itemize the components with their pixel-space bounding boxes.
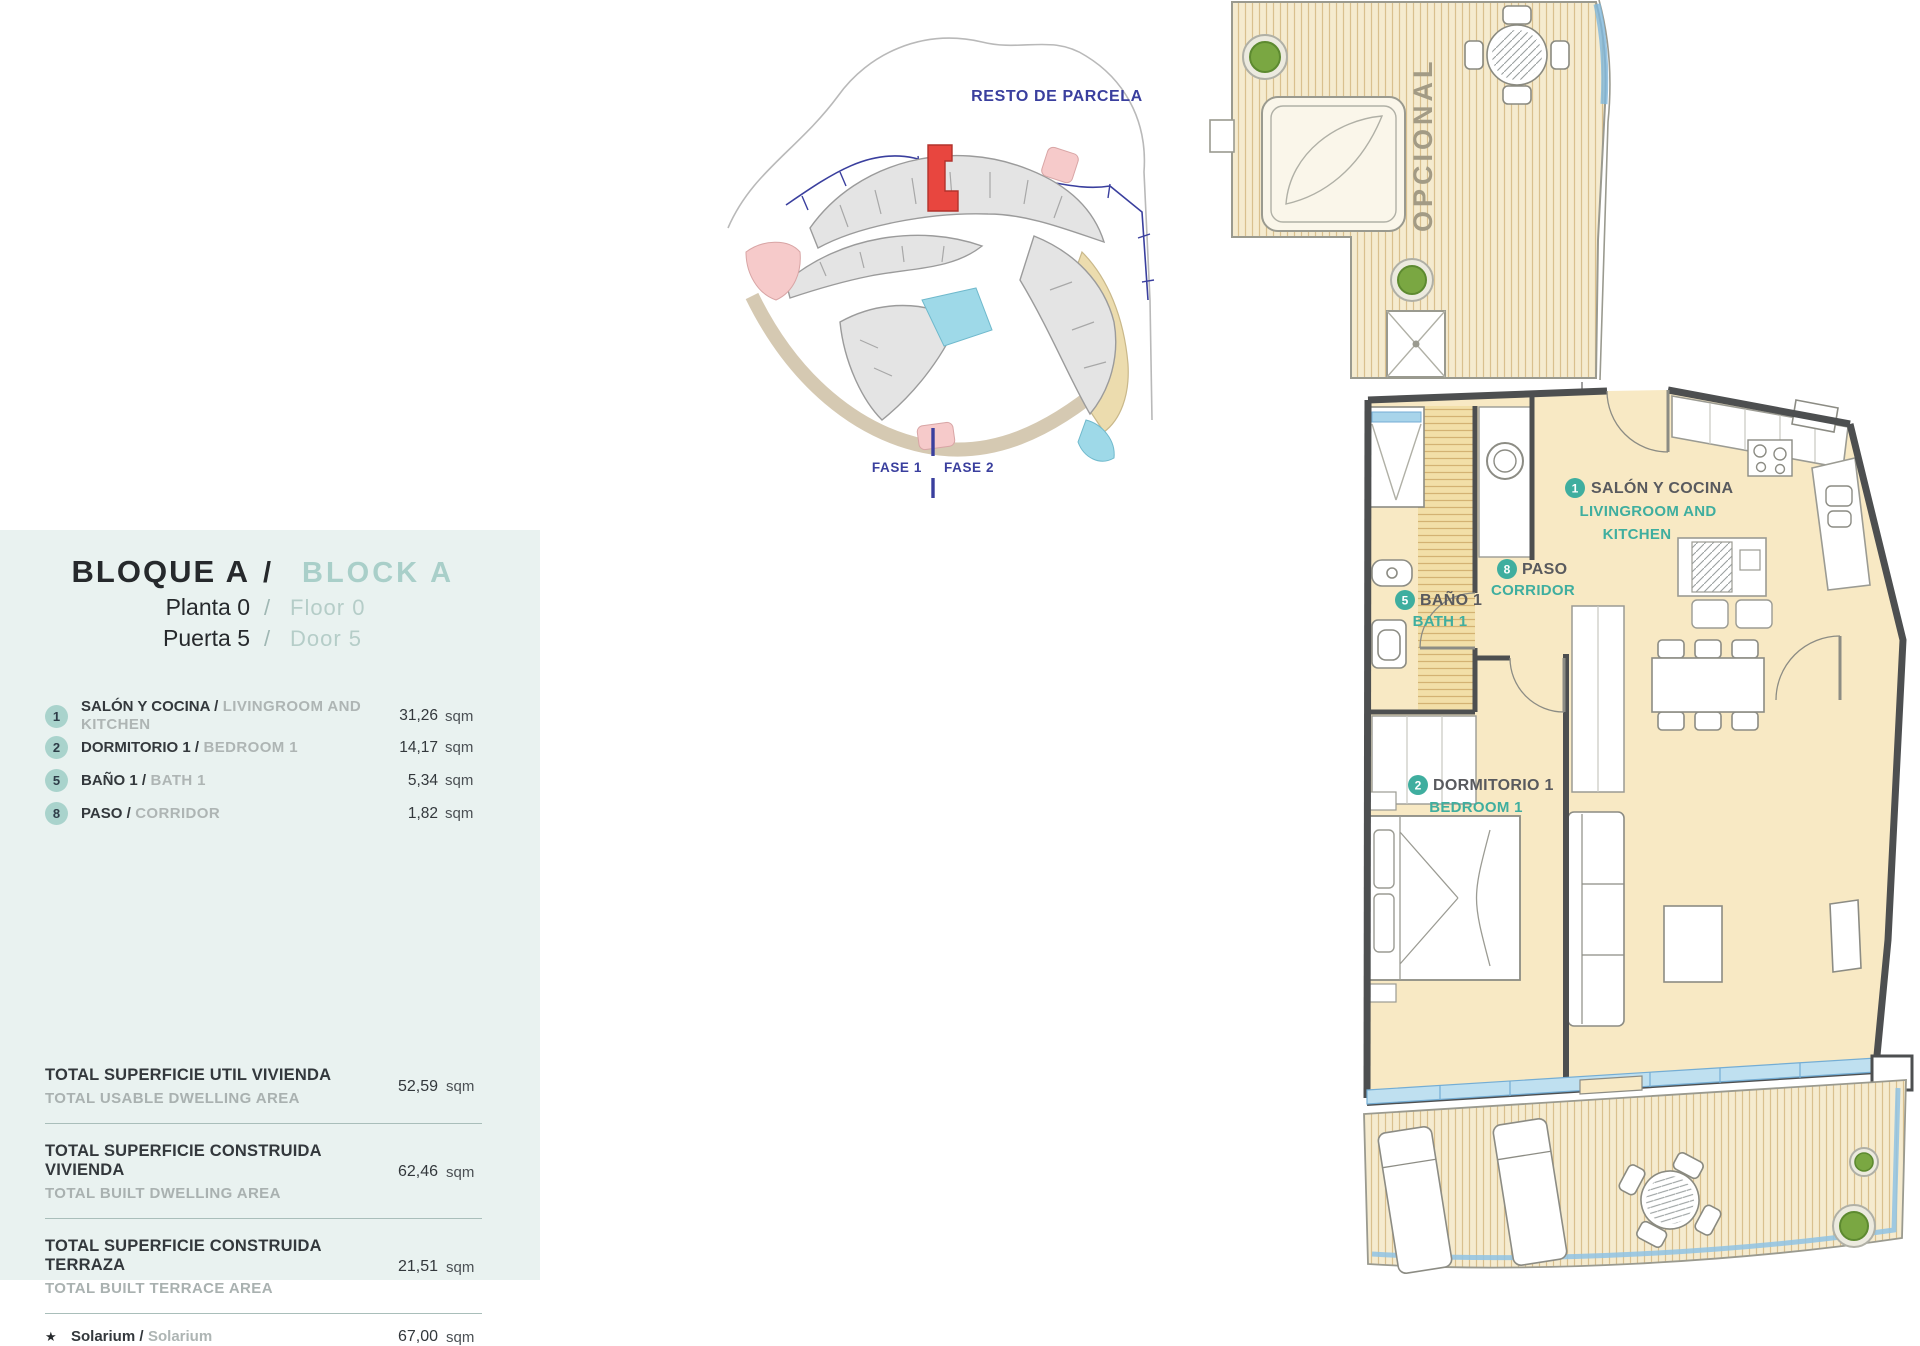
room-area-unit: sqm	[438, 805, 482, 822]
room-area: 5,34	[374, 772, 438, 790]
optional-label: OPCIONAL	[1408, 57, 1438, 232]
room-area-unit: sqm	[438, 772, 482, 789]
utility-closet	[1479, 407, 1531, 557]
svg-text:8: 8	[1504, 563, 1511, 577]
tv-bench-icon	[1830, 900, 1861, 972]
fase1-label: FASE 1	[872, 460, 922, 475]
svg-text:LIVINGROOM AND: LIVINGROOM AND	[1580, 503, 1717, 520]
building-band-mid	[786, 235, 982, 298]
svg-text:PASO: PASO	[1522, 561, 1567, 578]
apartment: 1 SALÓN Y COCINA LIVINGROOM AND KITCHEN …	[1367, 390, 1912, 1104]
armchair-icon	[1664, 906, 1722, 982]
washing-machine-icon	[1487, 443, 1523, 479]
room-row-bedroom: 2 DORMITORIO 1 / BEDROOM 1 14,17 sqm	[45, 731, 482, 764]
svg-text:DORMITORIO 1: DORMITORIO 1	[1433, 777, 1554, 794]
title-separator: /	[250, 557, 284, 590]
resto-de-parcela-label: RESTO DE PARCELA	[971, 88, 1143, 105]
floor-separator: /	[250, 595, 284, 621]
nightstand-icon	[1370, 984, 1396, 1002]
plant-icon	[1243, 35, 1287, 79]
svg-text:BEDROOM 1: BEDROOM 1	[1429, 799, 1523, 816]
svg-text:CORRIDOR: CORRIDOR	[1491, 582, 1575, 599]
door-en: Door 5	[284, 626, 482, 652]
block-title: BLOQUE A / BLOCK A	[45, 554, 482, 590]
block-title-es: BLOQUE A	[45, 554, 250, 590]
room-area-unit: sqm	[438, 739, 482, 756]
solarium-unit: sqm	[438, 1329, 482, 1346]
floor-row: Planta 0 / Floor 0	[45, 594, 482, 621]
bathroom-floor	[1418, 406, 1475, 710]
total-usable-area: TOTAL SUPERFICIE UTIL VIVIENDA TOTAL USA…	[45, 1048, 482, 1124]
hot-tub-icon	[1262, 97, 1405, 231]
room-row-livingroom: 1 SALÓN Y COCINA / LIVINGROOM AND KITCHE…	[45, 698, 482, 731]
svg-text:2: 2	[1415, 779, 1422, 793]
room-number-badge: 5	[45, 769, 68, 792]
hob-icon	[1748, 440, 1792, 476]
toilet-icon	[1372, 620, 1406, 668]
plant-icon	[1391, 259, 1433, 301]
floor-es: Planta 0	[45, 594, 250, 621]
total-unit: sqm	[438, 1078, 482, 1095]
solarium-star-icon: ★	[45, 1329, 71, 1345]
bathroom-window	[1372, 412, 1421, 422]
dining-table-icon	[1652, 640, 1764, 730]
unit-info-panel: BLOQUE A / BLOCK A Planta 0 / Floor 0 Pu…	[0, 530, 540, 1280]
svg-text:BATH 1: BATH 1	[1413, 613, 1468, 630]
washbasin-icon	[1372, 560, 1412, 586]
room-area-unit: sqm	[438, 708, 482, 725]
total-label: TOTAL SUPERFICIE CONSTRUIDA VIVIENDA TOT…	[45, 1142, 374, 1202]
total-label: TOTAL SUPERFICIE UTIL VIVIENDA TOTAL USA…	[45, 1066, 374, 1107]
terrace-niche	[1210, 120, 1234, 152]
svg-text:KITCHEN: KITCHEN	[1603, 526, 1672, 543]
total-built-terrace-area: TOTAL SUPERFICIE CONSTRUIDA TERRAZA TOTA…	[45, 1219, 482, 1314]
solarium-row: ★ Solarium / Solarium 67,00 sqm	[45, 1328, 482, 1346]
door-es: Puerta 5	[45, 625, 250, 652]
bed-icon	[1368, 792, 1520, 1002]
stool-icon	[1692, 600, 1728, 628]
total-value: 21,51	[374, 1258, 438, 1276]
svg-text:1: 1	[1572, 482, 1579, 496]
shower-icon	[1369, 407, 1424, 507]
total-unit: sqm	[438, 1164, 482, 1181]
room-row-bath: 5 BAÑO 1 / BATH 1 5,34 sqm	[45, 764, 482, 797]
kitchen-sink-icon	[1826, 486, 1852, 527]
fase2-label: FASE 2	[944, 460, 994, 475]
room-name: DORMITORIO 1 / BEDROOM 1	[81, 739, 374, 757]
door-separator: /	[250, 626, 284, 652]
stool-icon	[1736, 600, 1772, 628]
svg-text:SALÓN Y COCINA: SALÓN Y COCINA	[1591, 478, 1733, 497]
solarium-label: Solarium / Solarium	[71, 1328, 374, 1346]
room-area: 1,82	[374, 805, 438, 823]
kitchen-island	[1678, 538, 1772, 628]
total-unit: sqm	[438, 1259, 482, 1276]
room-name: SALÓN Y COCINA / LIVINGROOM AND KITCHEN	[81, 698, 374, 734]
room-list: 1 SALÓN Y COCINA / LIVINGROOM AND KITCHE…	[45, 698, 482, 830]
top-terrace: OPCIONAL	[1210, 0, 1610, 404]
totals-section: TOTAL SUPERFICIE UTIL VIVIENDA TOTAL USA…	[45, 1048, 482, 1346]
sofa-icon	[1568, 812, 1624, 1026]
building-band-east	[1020, 236, 1116, 414]
floor-plan: OPCIONAL	[1200, 0, 1920, 1280]
total-value: 52,59	[374, 1078, 438, 1096]
room-number-badge: 8	[45, 802, 68, 825]
site-plan: RESTO DE PARCELA FASE 1 FASE 2	[690, 0, 1160, 500]
room-area: 31,26	[374, 707, 438, 725]
bottom-terrace	[1364, 1080, 1906, 1274]
total-label: TOTAL SUPERFICIE CONSTRUIDA TERRAZA TOTA…	[45, 1237, 374, 1297]
room-area: 14,17	[374, 739, 438, 757]
total-value: 62,46	[374, 1163, 438, 1181]
solarium-value: 67,00	[374, 1328, 438, 1346]
plant-icon	[1833, 1205, 1875, 1247]
block-title-en: BLOCK A	[284, 557, 482, 590]
room-name: BAÑO 1 / BATH 1	[81, 772, 374, 790]
total-built-dwelling-area: TOTAL SUPERFICIE CONSTRUIDA VIVIENDA TOT…	[45, 1124, 482, 1219]
room-number-badge: 1	[45, 705, 68, 728]
door-row: Puerta 5 / Door 5	[45, 625, 482, 652]
room-name: PASO / CORRIDOR	[81, 805, 374, 823]
plan-sheet-page: { "colors":{"accent_teal":"#3fae9f","lig…	[0, 0, 1920, 1280]
skylight-icon	[1387, 311, 1445, 377]
nightstand-icon	[1370, 792, 1396, 810]
room-number-badge: 2	[45, 736, 68, 759]
plant-icon	[1850, 1148, 1878, 1176]
floor-en: Floor 0	[284, 595, 482, 621]
room-row-corridor: 8 PASO / CORRIDOR 1,82 sqm	[45, 797, 482, 830]
svg-text:BAÑO 1: BAÑO 1	[1420, 589, 1482, 609]
dishwasher-icon	[1692, 542, 1732, 592]
svg-text:5: 5	[1402, 594, 1409, 608]
